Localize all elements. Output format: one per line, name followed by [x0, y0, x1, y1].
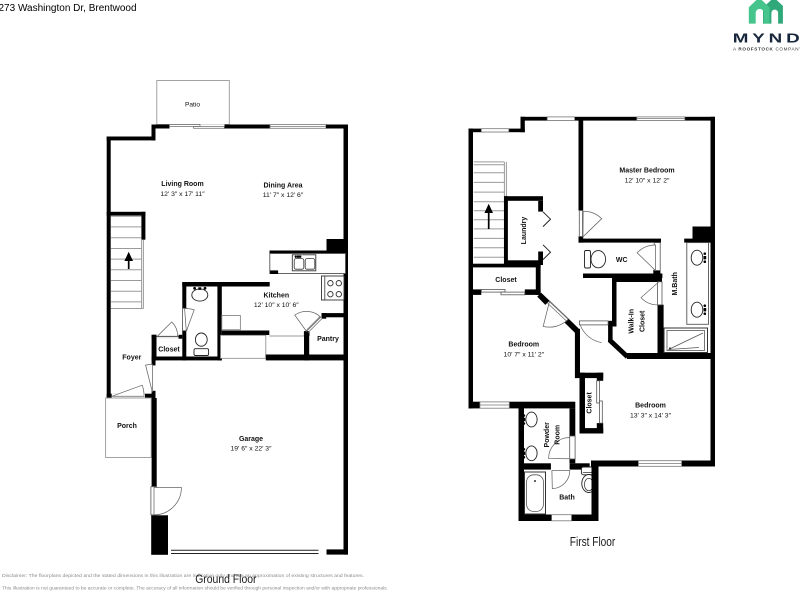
svg-text:Porch: Porch [117, 423, 137, 430]
svg-text:A ROOFSTOCK COMPANY: A ROOFSTOCK COMPANY [733, 46, 800, 51]
svg-text:Foyer: Foyer [122, 355, 141, 362]
svg-text:Kitchen: Kitchen [263, 292, 289, 299]
svg-text:Closet: Closet [640, 310, 647, 332]
svg-text:Garage: Garage [239, 436, 263, 443]
svg-text:Laundry: Laundry [521, 217, 528, 245]
svg-text:12′ 10″ x 10′ 6″: 12′ 10″ x 10′ 6″ [254, 302, 299, 309]
svg-text:This illustration is not guara: This illustration is not guaranteed to b… [2, 586, 388, 592]
svg-text:Powder: Powder [544, 422, 551, 448]
svg-text:11′ 7″ x 12′ 6″: 11′ 7″ x 12′ 6″ [263, 192, 304, 199]
svg-text:12′ 10″ x 12′ 2″: 12′ 10″ x 12′ 2″ [625, 178, 670, 185]
svg-text:M.Bath: M.Bath [672, 272, 679, 295]
svg-text:273 Washington Dr, Brentwood: 273 Washington Dr, Brentwood [0, 3, 137, 14]
svg-text:Pantry: Pantry [317, 336, 339, 343]
svg-text:Closet: Closet [158, 346, 180, 353]
svg-text:WC: WC [616, 257, 628, 264]
svg-text:Walk-In: Walk-In [629, 309, 636, 334]
svg-text:13′ 3″ x 14′ 3″: 13′ 3″ x 14′ 3″ [630, 412, 672, 419]
svg-text:MYND: MYND [733, 32, 800, 46]
svg-text:Closet: Closet [495, 277, 517, 284]
svg-text:19′ 6″ x 22′ 3″: 19′ 6″ x 22′ 3″ [231, 446, 273, 453]
svg-text:Bath: Bath [559, 495, 575, 502]
svg-text:12′ 3″ x 17′ 11″: 12′ 3″ x 17′ 11″ [160, 191, 205, 198]
svg-text:Patio: Patio [185, 101, 200, 108]
svg-text:10′ 7″ x 11′ 2″: 10′ 7″ x 11′ 2″ [504, 352, 545, 359]
svg-text:Master Bedroom: Master Bedroom [619, 168, 674, 175]
svg-text:Ground Floor: Ground Floor [195, 572, 256, 586]
svg-text:First Floor: First Floor [570, 534, 616, 549]
svg-text:Room: Room [554, 425, 561, 445]
svg-text:Closet: Closet [586, 392, 593, 414]
svg-text:Bedroom: Bedroom [635, 402, 666, 409]
svg-text:Disclaimer: The floorplans dep: Disclaimer: The floorplans depicted and … [2, 573, 364, 579]
svg-text:Living Room: Living Room [161, 181, 203, 188]
svg-text:Dining Area: Dining Area [263, 182, 302, 189]
svg-text:Bedroom: Bedroom [508, 341, 539, 348]
